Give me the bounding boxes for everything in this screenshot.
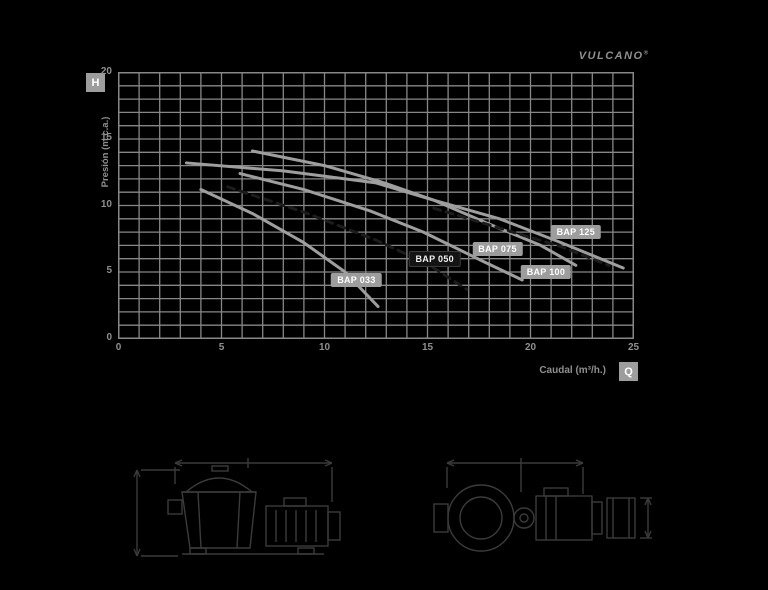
curve-label-bap-033: BAP 033: [331, 273, 381, 287]
x-axis-title: Caudal (m³/h.): [456, 365, 606, 376]
curve-bap-075: [240, 174, 522, 280]
y-tick-label: 0: [0, 332, 112, 343]
side-view-height-dimension: [134, 470, 180, 556]
brand-logo: VULCANO®: [568, 50, 648, 62]
y-tick-label: 20: [0, 66, 112, 77]
pump-top-view-drawing: [434, 458, 652, 551]
pump-side-view-body: [168, 466, 340, 554]
curve-label-bap-100: BAP 100: [521, 265, 571, 279]
curve-label-bap-125: BAP 125: [551, 225, 601, 239]
pump-top-view-body: [434, 485, 635, 551]
brand-logo-text: VULCANO: [579, 50, 644, 62]
curve-label-bap-075: BAP 075: [472, 242, 522, 256]
y-tick-label: 10: [0, 199, 112, 210]
x-tick-label: 25: [621, 342, 647, 353]
x-tick-label: 15: [415, 342, 441, 353]
x-tick-label: 10: [312, 342, 338, 353]
flow-axis-symbol-badge: Q: [619, 362, 638, 381]
curve-label-bap-050: BAP 050: [408, 251, 460, 267]
x-tick-label: 20: [518, 342, 544, 353]
x-tick-label: 5: [209, 342, 235, 353]
y-tick-label: 15: [0, 132, 112, 143]
pump-datasheet-page: VULCANO® H Presión (m.c.a.) 051015200510…: [0, 0, 768, 590]
top-view-height-dimension: [640, 498, 652, 538]
registered-mark: ®: [644, 50, 648, 56]
pump-side-view-drawing: [134, 458, 340, 556]
x-tick-label: 0: [106, 342, 132, 353]
performance-curves-chart: [118, 72, 634, 339]
dimension-drawings: [0, 440, 768, 590]
y-tick-label: 5: [0, 265, 112, 276]
y-axis-title: Presión (m.c.a.): [100, 97, 112, 207]
